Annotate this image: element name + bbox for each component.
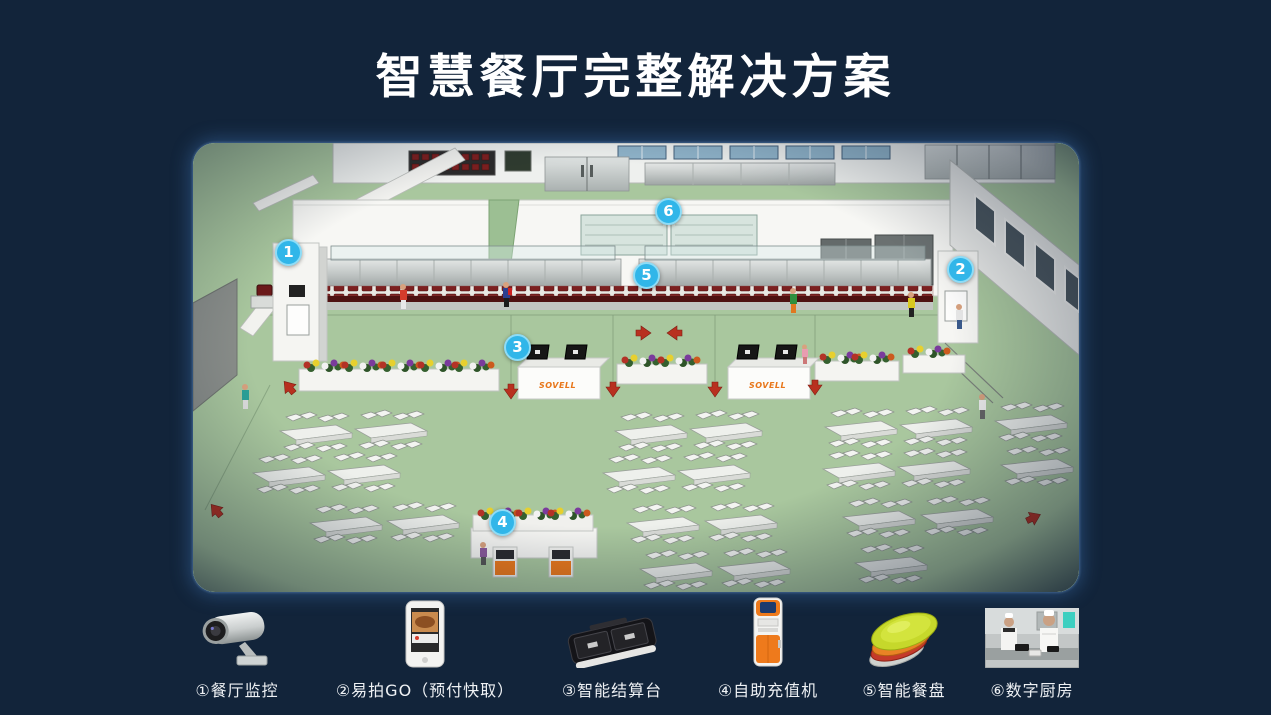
restaurant-3d-layout-image: SOVELL SOVELL [193,143,1079,592]
counter-brand-text: SOVELL [539,381,576,390]
digital-kitchen-icon [922,598,1142,668]
marker-1-monitoring: 1 [275,239,302,266]
marker-5-smart-plates: 5 [633,262,660,289]
counter-brand-text: SOVELL [749,381,786,390]
marker-3-settlement: 3 [504,334,531,361]
restaurant-scene-illustration: SOVELL SOVELL [193,143,1079,592]
marker-4-recharge-kiosk: 4 [489,509,516,536]
cctv-camera-icon [127,598,347,668]
legend-item-monitoring: ①餐厅监控 [127,598,347,701]
legend-label: ⑥数字厨房 [922,677,1142,701]
serving-line [251,246,933,310]
recharge-kiosk [493,547,517,577]
legend: ①餐厅监控 ②易拍GO（预付快取） [0,598,1271,708]
recharge-kiosk [549,547,573,577]
rail-base [315,302,933,310]
marker-6-digital-kitchen: 6 [655,198,682,225]
tray-rail [315,286,933,296]
legend-item-kitchen: ⑥数字厨房 [922,598,1142,701]
legend-label: ①餐厅监控 [127,677,347,701]
pass-window [505,151,531,171]
page-title: 智慧餐厅完整解决方案 [0,38,1271,107]
marker-2-yipai-go: 2 [947,256,974,283]
surveillance-camera [289,285,305,297]
info-screen [287,305,309,335]
slide-canvas: { "slide": { "title": "智慧餐厅完整解决方案" }, "s… [0,0,1271,715]
back-windows [618,146,890,159]
rail-front [315,296,933,302]
